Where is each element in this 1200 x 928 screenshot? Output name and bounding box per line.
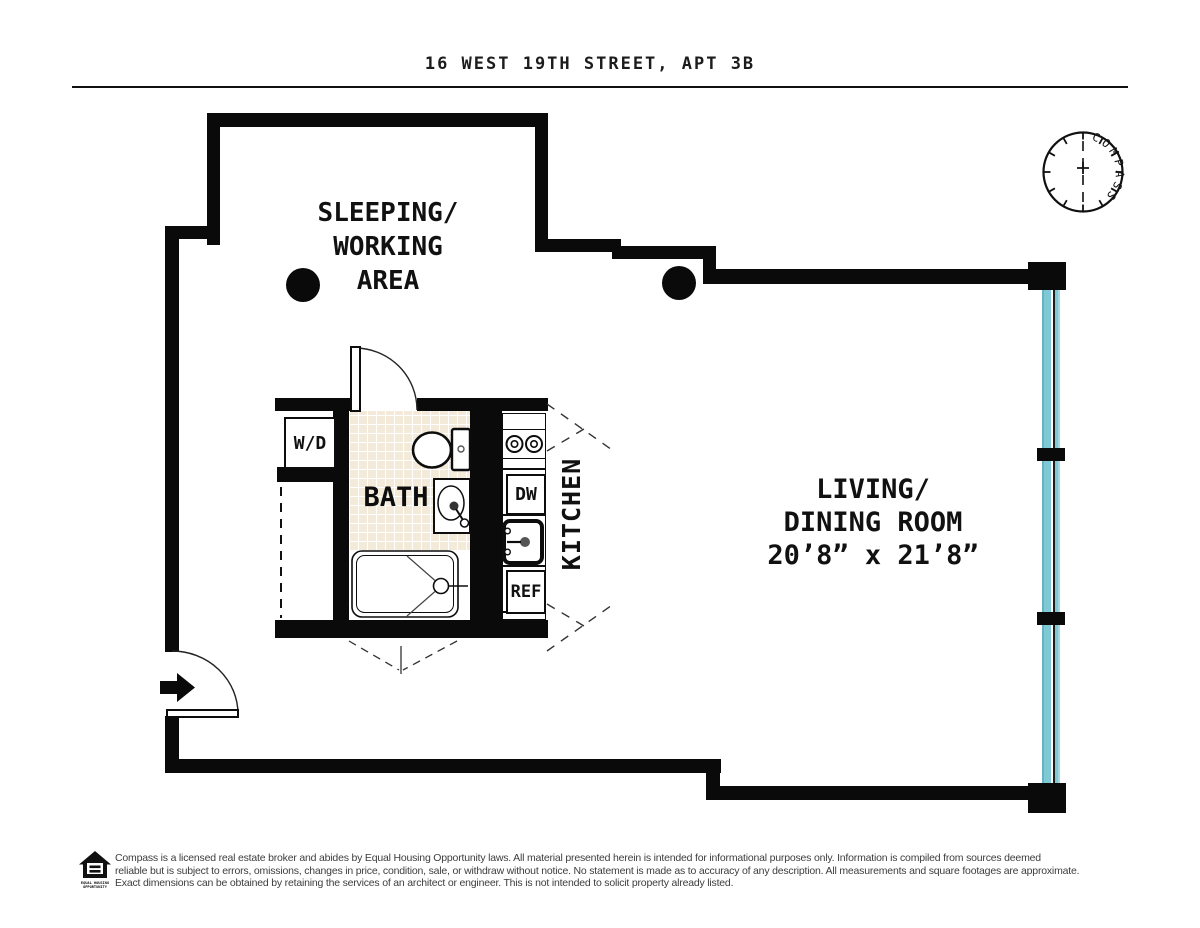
- living-dining-room-label: LIVING/ DINING ROOM 20’8” x 21’8”: [751, 473, 995, 572]
- page-title: 16 WEST 19TH STREET, APT 3B: [0, 54, 1180, 74]
- bath-door-swing-arc: [355, 348, 417, 410]
- wall-segment: [277, 467, 334, 482]
- compass-plus: [1077, 162, 1089, 174]
- bath-label: BATH: [352, 482, 440, 513]
- floor-plan-page: 16 WEST 19TH STREET, APT 3B DW: [0, 0, 1200, 928]
- disclaimer-line: Compass is a licensed real estate broker…: [115, 852, 1079, 865]
- room-dimensions: 20’8” x 21’8”: [751, 539, 995, 572]
- title-divider: [72, 86, 1128, 88]
- wall-segment: [165, 226, 179, 652]
- disclaimer: Compass is a licensed real estate broker…: [115, 852, 1079, 890]
- refrigerator-label: REF: [511, 582, 542, 602]
- bath-tile-floor: [349, 411, 470, 551]
- wall-segment: [165, 759, 721, 773]
- cooktop: [502, 429, 546, 459]
- entry-arrow-icon: [160, 673, 195, 702]
- washer-dryer: W/D: [284, 417, 336, 469]
- closet: [277, 482, 333, 620]
- sleeping-label-line: SLEEPING/: [281, 196, 495, 230]
- window-mullion: [1037, 612, 1065, 625]
- wall-corner-block: [1028, 262, 1066, 290]
- svg-text:COMPASS: COMPASS: [1090, 130, 1127, 206]
- sleeping-label-line: WORKING: [281, 230, 495, 264]
- footer: EQUAL HOUSING OPPORTUNITY Compass is a l…: [78, 850, 1168, 894]
- shower-head: [407, 556, 468, 616]
- wall-segment: [535, 113, 548, 252]
- wall-segment: [706, 786, 1038, 800]
- wall-segment: [612, 246, 716, 259]
- wall-segment: [470, 398, 502, 638]
- wall-segment: [535, 239, 621, 252]
- window-mullion: [1037, 448, 1065, 461]
- wall-corner-block: [1028, 783, 1066, 813]
- compass-label: COMPASS: [1090, 130, 1127, 206]
- disclaimer-line: reliable but is subject to errors, omiss…: [115, 865, 1079, 878]
- wall-segment: [703, 269, 1032, 284]
- refrigerator: REF: [506, 570, 546, 614]
- bifold-door-dashes: [349, 641, 457, 674]
- washer-dryer-label: W/D: [294, 433, 327, 454]
- logo-caption: OPPORTUNITY: [83, 885, 108, 889]
- dishwasher-label: DW: [515, 484, 537, 505]
- disclaimer-line: Exact dimensions can be obtained by reta…: [115, 877, 1079, 890]
- window-wall: [1042, 290, 1060, 783]
- bathtub: [352, 551, 458, 617]
- wall-segment: [207, 113, 548, 127]
- sleeping-label-line: AREA: [281, 264, 495, 298]
- sleeping-working-area-label: SLEEPING/ WORKING AREA: [281, 196, 495, 298]
- living-label-line: LIVING/: [751, 473, 995, 506]
- dishwasher: DW: [506, 474, 546, 515]
- kitchen-label: KITCHEN: [558, 454, 586, 574]
- entry-door-swing-arc: [172, 651, 238, 714]
- counter-divider: [502, 565, 546, 567]
- wall-segment: [275, 620, 548, 638]
- equal-housing-opportunity-icon: EQUAL HOUSING OPPORTUNITY: [78, 850, 112, 890]
- compass-rose: COMPASS: [1044, 130, 1128, 212]
- column: [662, 266, 696, 300]
- counter-divider: [502, 468, 546, 470]
- living-label-line: DINING ROOM: [751, 506, 995, 539]
